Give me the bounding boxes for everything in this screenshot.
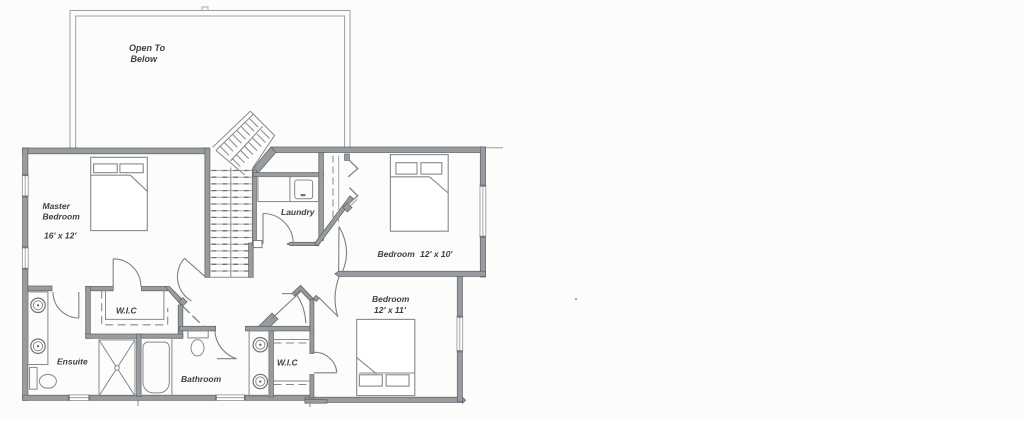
- svg-text:Laundry: Laundry: [281, 207, 316, 217]
- svg-text:Bedroom: Bedroom: [43, 212, 81, 222]
- svg-text:W.I.C: W.I.C: [277, 358, 298, 368]
- svg-text:Master: Master: [43, 201, 71, 211]
- svg-text:Ensuite: Ensuite: [57, 357, 88, 367]
- svg-text:Below: Below: [131, 54, 159, 64]
- svg-text:12' x 10': 12' x 10': [420, 249, 453, 259]
- svg-text:Bedroom: Bedroom: [372, 294, 410, 304]
- svg-text:W.I.C: W.I.C: [116, 306, 137, 316]
- svg-text:12' x 11': 12' x 11': [374, 305, 407, 315]
- svg-text:16' x 12': 16' x 12': [44, 231, 77, 241]
- svg-text:Bathroom: Bathroom: [181, 374, 222, 384]
- svg-text:Open To: Open To: [129, 43, 166, 53]
- svg-text:Bedroom: Bedroom: [378, 249, 416, 259]
